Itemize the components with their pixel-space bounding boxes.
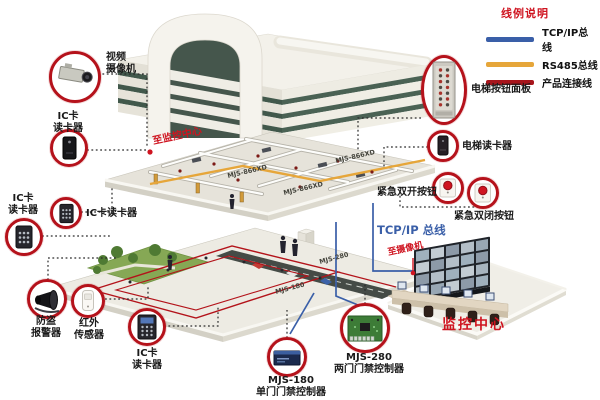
legend-label-product: 产品连接线 <box>542 75 592 90</box>
label-ic-reader-top: IC卡读卡器 <box>44 111 92 135</box>
ic-keypad-reader-icon-2 <box>50 197 82 229</box>
label-emergency-close: 紧急双闭按钮 <box>454 211 514 223</box>
tcpip-line-swatch <box>486 37 534 42</box>
mjs280-controller-icon <box>340 303 390 353</box>
label-elevator-panel: 电梯按钮面板 <box>471 84 531 96</box>
infrared-sensor-icon <box>71 284 105 318</box>
label-monitoring-center: 监控中心 <box>442 314 506 334</box>
label-video-camera: 视频摄像机 <box>106 52 136 76</box>
legend-label-rs485: RS485总线 <box>542 57 598 72</box>
legend-title: 线例说明 <box>452 5 598 21</box>
video-camera-icon <box>49 51 101 103</box>
elevator-card-reader-icon <box>427 130 459 162</box>
label-burglar-alarm: 防盗报警器 <box>22 316 70 340</box>
emergency-close-button-icon <box>467 177 499 209</box>
legend-label-tcpip: TCP/IP总线 <box>542 24 598 54</box>
label-emergency-open: 紧急双开按钮 <box>377 187 437 199</box>
rs485-line-swatch <box>486 62 534 67</box>
label-ic-reader-left: IC卡读卡器 <box>0 193 46 217</box>
label-ic-reader-bottom: IC卡读卡器 <box>124 348 170 372</box>
burglar-alarm-icon <box>27 279 67 319</box>
mjs180-controller-icon <box>267 337 307 377</box>
label-tcpip-bus: TCP/IP 总线 <box>377 224 446 238</box>
label-ir-sensor: 红外传感器 <box>66 318 112 342</box>
ic-keypad-reader-icon <box>5 218 43 256</box>
elevator-button-panel-icon <box>421 55 467 125</box>
label-ic-reader-mid: IC卡读卡器 <box>86 208 137 220</box>
legend-item-tcpip: TCP/IP总线 <box>486 24 598 54</box>
diagram-canvas: MJS-866XD MJS-866XD MJS-866XD MJS-280 MJ… <box>0 0 600 400</box>
label-mjs280: MJS-280两门门禁控制器 <box>322 352 416 376</box>
legend-item-rs485: RS485总线 <box>486 57 598 72</box>
label-elevator-reader: 电梯读卡器 <box>462 141 512 153</box>
arch-entrance <box>148 14 262 138</box>
ic-keypad-display-reader-icon <box>128 308 166 346</box>
legend: 线例说明 TCP/IP总线 RS485总线 产品连接线 <box>452 5 598 90</box>
label-mjs180: MJS-180单门门禁控制器 <box>245 375 337 399</box>
